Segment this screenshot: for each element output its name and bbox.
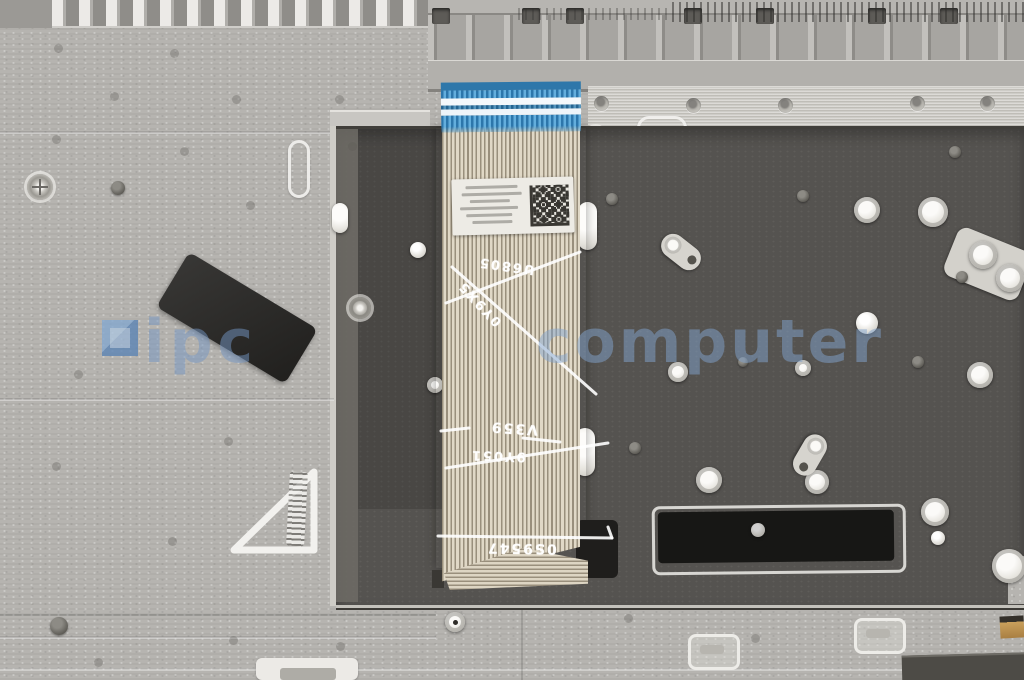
product-label [451,176,574,235]
datamatrix-code [529,185,569,227]
spot-weld-dot [232,95,241,104]
spot-weld-dot [52,462,61,471]
spot-weld-dot [336,642,345,651]
spot-weld-dot [168,537,177,546]
black-rect-sticker [658,510,895,563]
spot-weld-dot [94,658,103,667]
spot-weld-dot [624,614,633,623]
spot-weld-dot [224,437,233,446]
label-text-line [472,220,512,224]
laptop-palmrest-photo: U6805 0Y9X5 V359 9Y051 0S9547 ipc comput… [0,0,1024,680]
handwritten-mark: V359 [490,418,539,437]
label-text-line [460,206,518,211]
spot-weld-dot [229,636,238,645]
ribbon-cable-connector [441,81,581,132]
spot-weld-dot [52,135,61,144]
sticker-peg [751,523,765,537]
spot-weld-dot [751,634,760,643]
spot-weld-dot [348,142,357,151]
spot-weld-dot [246,201,255,210]
label-text-lines [459,185,524,231]
spot-weld-dot [54,44,63,53]
label-text-line [465,185,517,189]
spot-weld-dot [170,49,179,58]
handwritten-mark: 9Y051 [470,447,526,464]
spot-weld-dot [74,370,83,379]
handwritten-mark: 0S9547 [486,539,557,556]
label-text-line [466,213,512,217]
spot-weld-dot [180,147,189,156]
connector-teeth-long [441,114,581,132]
label-text-line [462,192,522,197]
spot-weld-dot [110,92,119,101]
label-text-line [470,199,510,203]
spot-weld-dot [335,95,344,104]
